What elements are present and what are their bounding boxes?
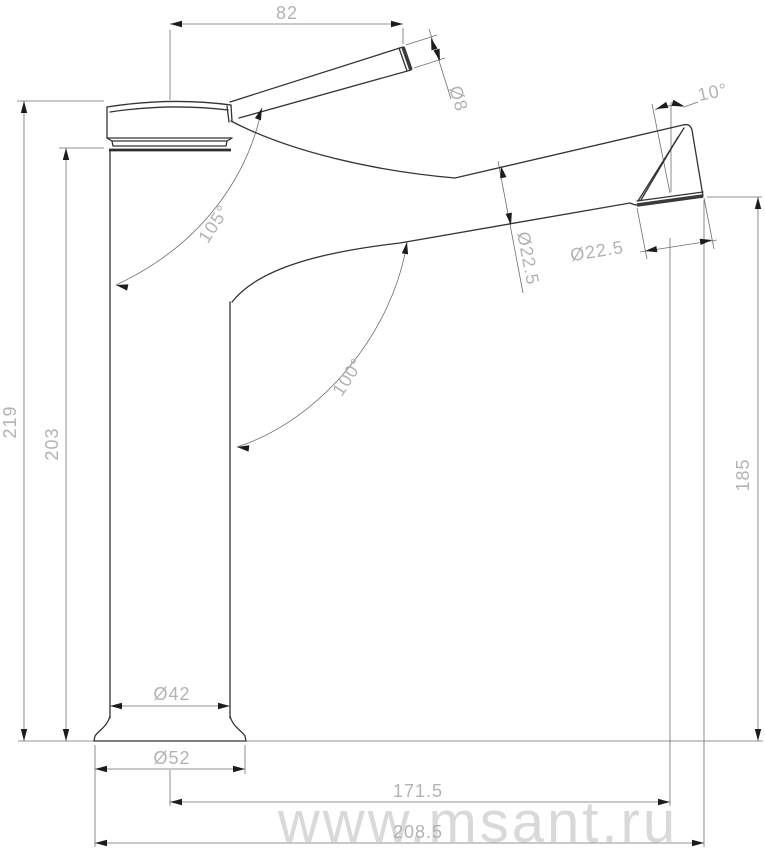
cap-top-edge xyxy=(107,101,231,107)
dim-label-handle-reach: 82 xyxy=(276,3,298,23)
cartridge-cap xyxy=(107,101,232,150)
dimension-labels: 82 Ø8 10° 105° 100° Ø22.5 Ø22.5 219 203 … xyxy=(0,3,753,842)
dim-label-handle-diameter: Ø8 xyxy=(445,83,472,114)
body-and-base xyxy=(94,150,246,741)
ring-lower xyxy=(112,141,227,146)
leader-line xyxy=(684,102,698,107)
dim-label-tip-angle: 10° xyxy=(696,79,730,105)
cap-top-inner-edge xyxy=(110,107,228,112)
dim-label-outlet-height: 185 xyxy=(733,458,753,491)
dim-line-spout-diameter xyxy=(498,161,523,293)
arrowhead xyxy=(170,21,182,27)
dim-219 xyxy=(17,101,104,741)
dim-label-outlet-diameter: Ø22.5 xyxy=(569,237,626,265)
arrowhead xyxy=(655,102,668,112)
base-skirt-right xyxy=(230,716,246,741)
dim-handle-diameter xyxy=(406,29,451,99)
lever-lower-edge xyxy=(239,70,411,118)
arrowhead xyxy=(218,703,230,709)
handle-lever xyxy=(230,47,411,118)
technical-drawing-sheet: www.msant.ru xyxy=(0,0,765,852)
arrowhead xyxy=(21,101,27,113)
dim-203 xyxy=(59,148,104,741)
arrowhead xyxy=(755,197,761,209)
arrowhead xyxy=(21,729,27,741)
spout-outlet-face xyxy=(637,196,703,205)
arrowhead xyxy=(95,766,107,772)
dim-label-spout-diameter: Ø22.5 xyxy=(513,230,543,287)
cap-step-line xyxy=(227,106,229,122)
arrowhead xyxy=(755,729,761,741)
arrowheads xyxy=(21,21,761,846)
dim-arc-100 xyxy=(237,242,407,447)
dim-label-total-reach: 208.5 xyxy=(393,822,443,842)
lever-end-face xyxy=(403,47,411,70)
dim-tip-angle xyxy=(652,102,698,193)
dimension-lines xyxy=(17,24,763,847)
spout xyxy=(231,121,703,302)
dim-label-handle-angle: 105° xyxy=(194,201,233,246)
arrowhead xyxy=(692,840,704,846)
dim-label-body-diameter: Ø42 xyxy=(153,684,190,704)
arrowhead xyxy=(110,703,122,709)
tip-bevel-line-2 xyxy=(641,137,678,200)
spout-top-edge xyxy=(231,121,703,196)
faucet-outline xyxy=(94,47,703,741)
arrowhead xyxy=(115,282,128,291)
ext-line xyxy=(414,58,445,68)
dim-label-outlet-reach: 171.5 xyxy=(393,781,443,801)
dim-arc-105 xyxy=(116,108,262,285)
ref-line-slanted xyxy=(652,104,670,193)
dim-label-base-diameter: Ø52 xyxy=(153,748,190,768)
dim-171-5 xyxy=(170,238,670,806)
arrowhead xyxy=(402,241,410,254)
cap-right-edge xyxy=(231,105,232,121)
arrowhead xyxy=(672,100,685,109)
arrowhead xyxy=(391,21,403,27)
dim-label-spout-angle: 100° xyxy=(328,354,367,399)
base-skirt-left xyxy=(94,716,110,741)
arrowhead xyxy=(63,148,69,160)
arrowhead xyxy=(644,246,657,254)
arrowhead xyxy=(428,37,438,50)
faucet-dimension-drawing: www.msant.ru xyxy=(0,0,765,852)
lever-upper-edge xyxy=(230,47,403,102)
dim-82 xyxy=(170,24,403,100)
dim-label-body-height: 203 xyxy=(42,427,62,460)
arrowhead xyxy=(63,729,69,741)
arrowhead xyxy=(233,766,245,772)
arrowhead xyxy=(95,840,107,846)
arrowhead xyxy=(170,799,182,805)
dim-label-total-height: 219 xyxy=(0,405,20,438)
